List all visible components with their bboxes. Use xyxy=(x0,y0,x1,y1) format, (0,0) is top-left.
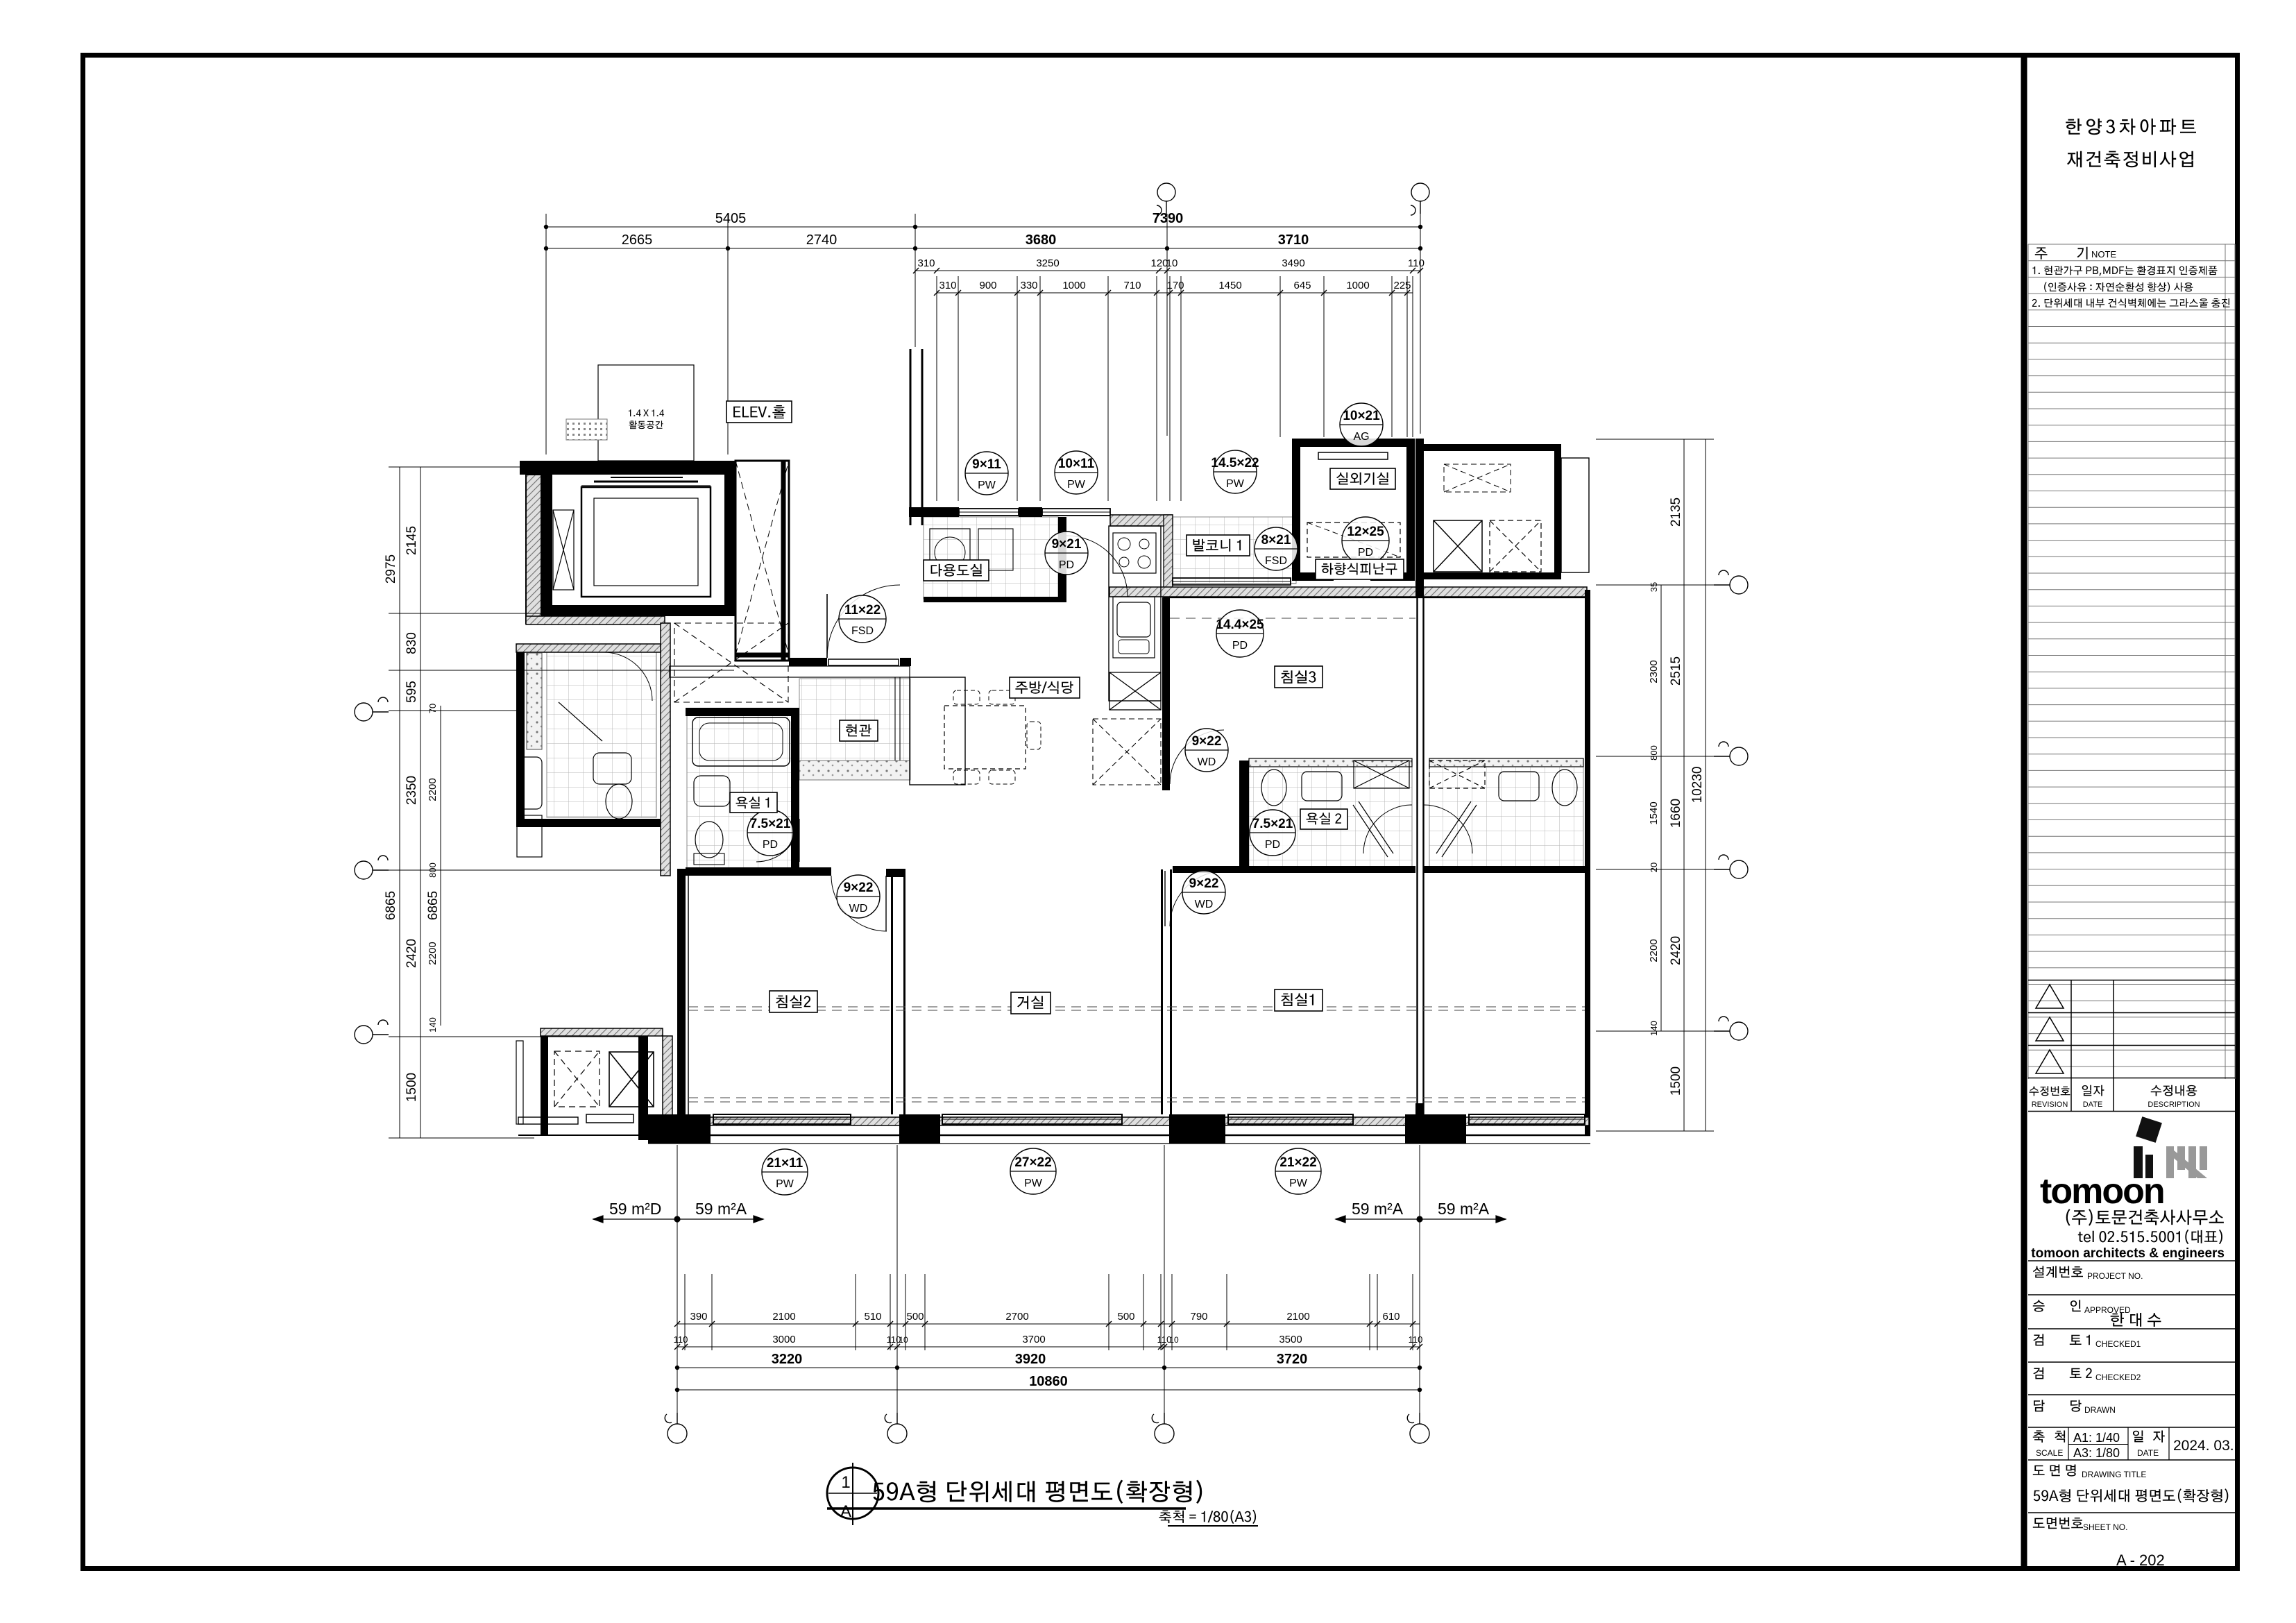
svg-text:3000: 3000 xyxy=(772,1334,795,1345)
svg-text:790: 790 xyxy=(1190,1311,1207,1323)
svg-text:830: 830 xyxy=(405,632,419,654)
svg-text:10×11: 10×11 xyxy=(1058,457,1095,471)
svg-text:225: 225 xyxy=(1393,280,1411,291)
svg-text:PD: PD xyxy=(1265,839,1280,851)
svg-text:59 m²A: 59 m²A xyxy=(695,1200,747,1218)
svg-text:10: 10 xyxy=(1169,1335,1179,1345)
svg-text:DRAWN: DRAWN xyxy=(2084,1405,2116,1415)
svg-text:310: 310 xyxy=(939,280,956,291)
svg-text:610: 610 xyxy=(1382,1311,1400,1323)
svg-text:110: 110 xyxy=(1408,257,1425,269)
svg-text:AG: AG xyxy=(1353,431,1369,443)
svg-text:2665: 2665 xyxy=(622,232,653,248)
svg-text:390: 390 xyxy=(690,1311,707,1323)
svg-text:10: 10 xyxy=(899,1335,908,1345)
svg-text:140: 140 xyxy=(1649,1021,1659,1036)
svg-text:645: 645 xyxy=(1293,280,1311,291)
svg-text:1000: 1000 xyxy=(1346,280,1369,291)
svg-text:14.4×25: 14.4×25 xyxy=(1216,618,1264,632)
svg-text:2100: 2100 xyxy=(772,1311,795,1323)
svg-text:2740: 2740 xyxy=(806,232,837,248)
svg-text:PW: PW xyxy=(1024,1178,1043,1189)
svg-text:710: 710 xyxy=(1123,280,1141,291)
svg-text:800: 800 xyxy=(1649,745,1659,760)
svg-text:FSD: FSD xyxy=(1265,555,1287,567)
svg-text:310: 310 xyxy=(917,257,935,269)
svg-text:PW: PW xyxy=(1067,479,1086,491)
svg-text:3490: 3490 xyxy=(1282,257,1304,269)
svg-text:110: 110 xyxy=(1409,1334,1423,1345)
svg-text:170: 170 xyxy=(1166,280,1184,291)
svg-text:2975: 2975 xyxy=(384,554,398,584)
svg-text:70: 70 xyxy=(427,704,438,713)
svg-text:tomoon: tomoon xyxy=(2040,1171,2164,1212)
svg-text:1540: 1540 xyxy=(1648,801,1660,824)
svg-text:3920: 3920 xyxy=(1015,1352,1046,1367)
svg-text:NOTE: NOTE xyxy=(2091,249,2116,260)
svg-text:1: 1 xyxy=(841,1473,850,1492)
svg-text:27×22: 27×22 xyxy=(1014,1155,1051,1170)
svg-text:21×22: 21×22 xyxy=(1279,1155,1316,1170)
svg-text:110: 110 xyxy=(674,1334,688,1345)
svg-text:APPROVED: APPROVED xyxy=(2084,1305,2131,1315)
svg-text:5405: 5405 xyxy=(715,211,747,226)
svg-text:WD: WD xyxy=(1198,756,1216,768)
svg-text:2350: 2350 xyxy=(405,776,419,805)
svg-text:2024. 03.: 2024. 03. xyxy=(2173,1438,2234,1454)
svg-text:2300: 2300 xyxy=(1648,660,1660,683)
svg-text:DESCRIPTION: DESCRIPTION xyxy=(2148,1101,2200,1109)
svg-text:A3: 1/80: A3: 1/80 xyxy=(2073,1446,2120,1460)
svg-text:DATE: DATE xyxy=(2083,1101,2103,1109)
svg-text:1450: 1450 xyxy=(1218,280,1241,291)
svg-text:10860: 10860 xyxy=(1029,1374,1068,1389)
svg-text:6865: 6865 xyxy=(384,891,398,920)
svg-text:7.5×21: 7.5×21 xyxy=(750,817,791,831)
svg-text:7.5×21: 7.5×21 xyxy=(1252,817,1293,831)
svg-text:140: 140 xyxy=(427,1017,438,1033)
svg-text:14.5×22: 14.5×22 xyxy=(1211,456,1259,470)
svg-text:59 m²A: 59 m²A xyxy=(1352,1200,1404,1218)
svg-text:59 m²D: 59 m²D xyxy=(609,1200,661,1218)
svg-text:WD: WD xyxy=(849,903,868,915)
svg-text:PROJECT NO.: PROJECT NO. xyxy=(2087,1271,2143,1281)
svg-text:595: 595 xyxy=(405,681,419,703)
svg-text:9×11: 9×11 xyxy=(972,457,1001,472)
svg-text:21×11: 21×11 xyxy=(767,1156,803,1171)
svg-text:PW: PW xyxy=(1289,1178,1308,1189)
svg-text:tomoon architects & engineers: tomoon architects & engineers xyxy=(2031,1246,2225,1261)
svg-text:3720: 3720 xyxy=(1277,1352,1308,1367)
svg-text:FSD: FSD xyxy=(851,625,874,637)
svg-text:A: A xyxy=(840,1502,851,1521)
svg-text:9×22: 9×22 xyxy=(844,881,874,895)
svg-text:10230: 10230 xyxy=(1690,767,1705,804)
svg-text:7390: 7390 xyxy=(1153,211,1184,226)
svg-text:8×21: 8×21 xyxy=(1261,533,1291,547)
svg-text:1500: 1500 xyxy=(1669,1067,1683,1096)
svg-text:CHECKED1: CHECKED1 xyxy=(2095,1339,2141,1349)
svg-text:2700: 2700 xyxy=(1005,1311,1028,1323)
svg-text:2515: 2515 xyxy=(1669,656,1683,686)
svg-text:A1: 1/40: A1: 1/40 xyxy=(2073,1431,2120,1445)
svg-text:REVISION: REVISION xyxy=(2032,1101,2068,1109)
svg-text:3220: 3220 xyxy=(772,1352,803,1367)
svg-text:PD: PD xyxy=(1232,640,1248,652)
svg-text:A - 202: A - 202 xyxy=(2116,1552,2165,1569)
svg-text:DRAWING TITLE: DRAWING TITLE xyxy=(2082,1470,2146,1479)
svg-text:3680: 3680 xyxy=(1026,232,1057,248)
svg-text:2200: 2200 xyxy=(427,778,439,801)
svg-text:1660: 1660 xyxy=(1669,799,1683,828)
svg-text:PD: PD xyxy=(1358,547,1373,559)
svg-text:3710: 3710 xyxy=(1278,232,1309,248)
svg-text:PD: PD xyxy=(1059,559,1074,571)
svg-text:500: 500 xyxy=(906,1311,924,1323)
svg-text:2200: 2200 xyxy=(1648,939,1660,962)
svg-text:CHECKED2: CHECKED2 xyxy=(2095,1373,2141,1382)
svg-text:900: 900 xyxy=(979,280,996,291)
svg-text:20: 20 xyxy=(1649,863,1659,872)
svg-text:1000: 1000 xyxy=(1062,280,1085,291)
svg-text:11×22: 11×22 xyxy=(844,603,881,618)
svg-text:2135: 2135 xyxy=(1669,498,1683,527)
svg-text:10×21: 10×21 xyxy=(1343,409,1380,423)
svg-text:9×22: 9×22 xyxy=(1189,876,1219,891)
svg-text:59 m²A: 59 m²A xyxy=(1438,1200,1490,1218)
svg-text:9×21: 9×21 xyxy=(1052,537,1082,552)
svg-text:800: 800 xyxy=(427,863,438,878)
svg-text:330: 330 xyxy=(1020,280,1037,291)
svg-text:10: 10 xyxy=(1166,257,1178,269)
svg-text:DATE: DATE xyxy=(2137,1448,2159,1458)
svg-text:2200: 2200 xyxy=(427,942,439,965)
svg-text:2100: 2100 xyxy=(1286,1311,1309,1323)
svg-text:WD: WD xyxy=(1195,899,1214,910)
svg-text:9×22: 9×22 xyxy=(1192,734,1222,749)
svg-text:2420: 2420 xyxy=(405,939,419,968)
svg-text:SHEET NO.: SHEET NO. xyxy=(2083,1522,2127,1532)
svg-text:1500: 1500 xyxy=(405,1073,419,1102)
svg-text:SCALE: SCALE xyxy=(2036,1448,2063,1458)
svg-text:510: 510 xyxy=(864,1311,881,1323)
svg-text:PW: PW xyxy=(1226,478,1245,490)
svg-text:6865: 6865 xyxy=(426,891,441,920)
svg-text:3700: 3700 xyxy=(1022,1334,1045,1345)
svg-text:12×25: 12×25 xyxy=(1347,525,1384,539)
svg-text:500: 500 xyxy=(1117,1311,1134,1323)
svg-text:2420: 2420 xyxy=(1669,936,1683,965)
svg-text:3500: 3500 xyxy=(1279,1334,1302,1345)
svg-text:35: 35 xyxy=(1649,582,1659,592)
svg-text:3250: 3250 xyxy=(1036,257,1059,269)
svg-text:PW: PW xyxy=(978,479,996,491)
svg-text:PW: PW xyxy=(776,1178,794,1190)
svg-text:2145: 2145 xyxy=(405,526,419,555)
svg-text:PD: PD xyxy=(763,839,778,851)
